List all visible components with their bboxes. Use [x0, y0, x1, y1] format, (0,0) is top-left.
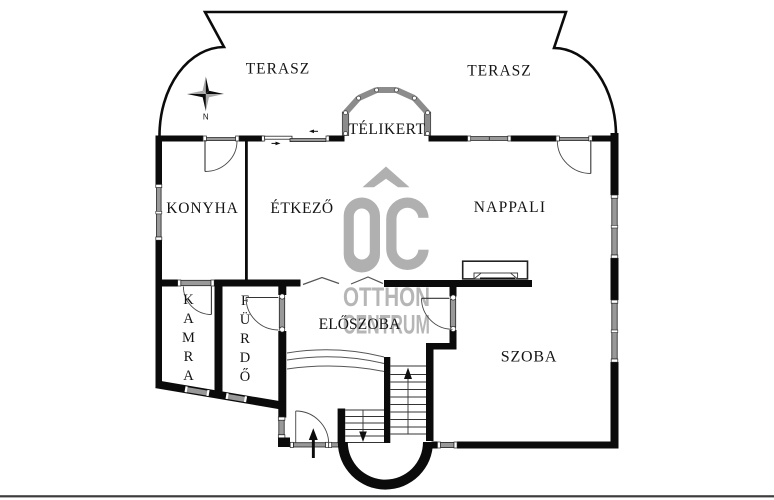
- svg-text:NAPPALI: NAPPALI: [474, 199, 546, 216]
- svg-text:A: A: [183, 311, 194, 327]
- svg-text:ELŐSZOBA: ELŐSZOBA: [319, 316, 401, 333]
- svg-text:R: R: [184, 349, 194, 365]
- svg-text:R: R: [240, 331, 250, 347]
- svg-text:KONYHA: KONYHA: [166, 200, 239, 217]
- svg-text:F: F: [241, 293, 249, 309]
- svg-text:N: N: [203, 113, 209, 122]
- svg-text:Ü: Ü: [240, 311, 251, 328]
- svg-text:M: M: [182, 330, 195, 346]
- svg-text:K: K: [183, 292, 194, 308]
- svg-text:TÉLIKERT: TÉLIKERT: [348, 121, 425, 138]
- svg-text:TERASZ: TERASZ: [467, 63, 532, 80]
- svg-text:Ő: Ő: [240, 368, 250, 385]
- svg-text:D: D: [240, 350, 250, 366]
- svg-text:ÉTKEZŐ: ÉTKEZŐ: [270, 200, 333, 217]
- svg-text:SZOBA: SZOBA: [501, 349, 557, 366]
- svg-text:A: A: [183, 368, 194, 384]
- svg-text:TERASZ: TERASZ: [246, 61, 311, 78]
